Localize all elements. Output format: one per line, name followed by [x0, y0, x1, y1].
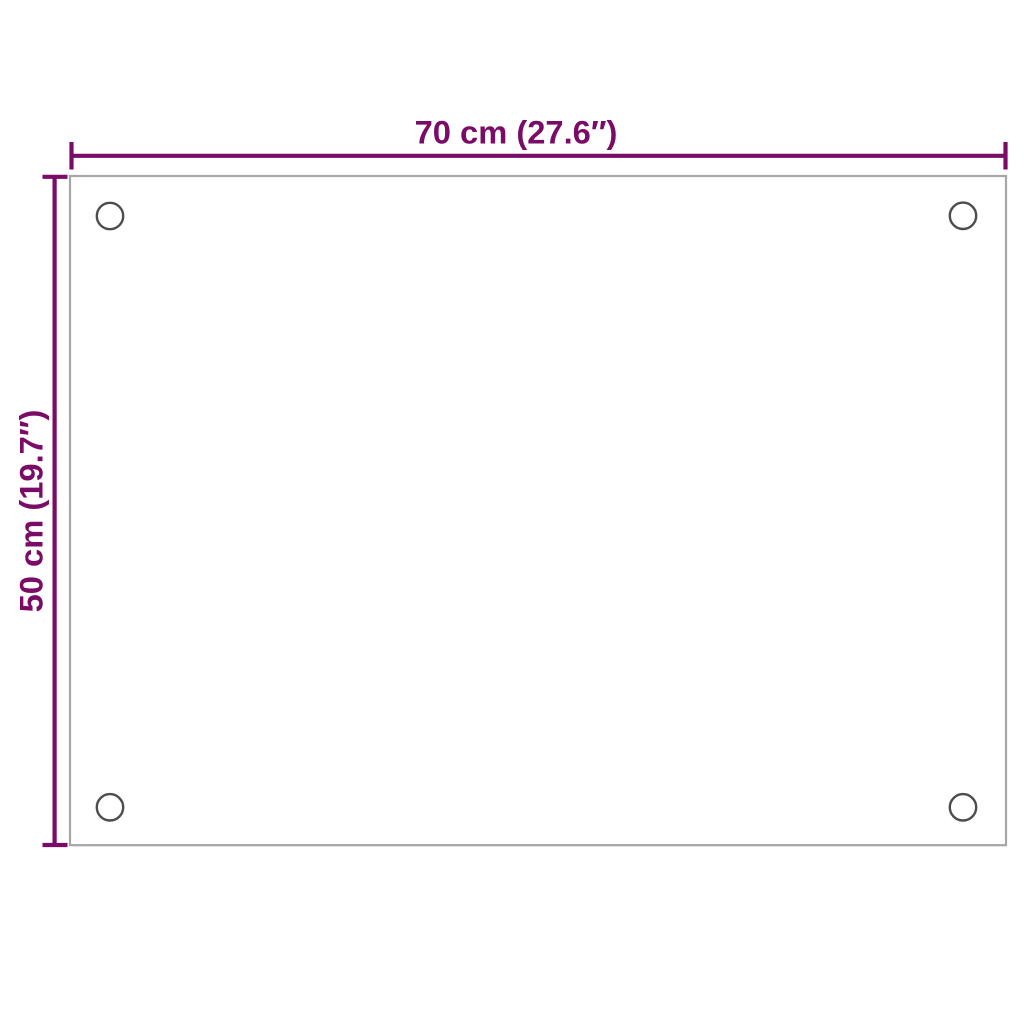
svg-text:50 cm (19.7″): 50 cm (19.7″)	[13, 410, 50, 613]
svg-text:70 cm (27.6″): 70 cm (27.6″)	[415, 114, 618, 151]
